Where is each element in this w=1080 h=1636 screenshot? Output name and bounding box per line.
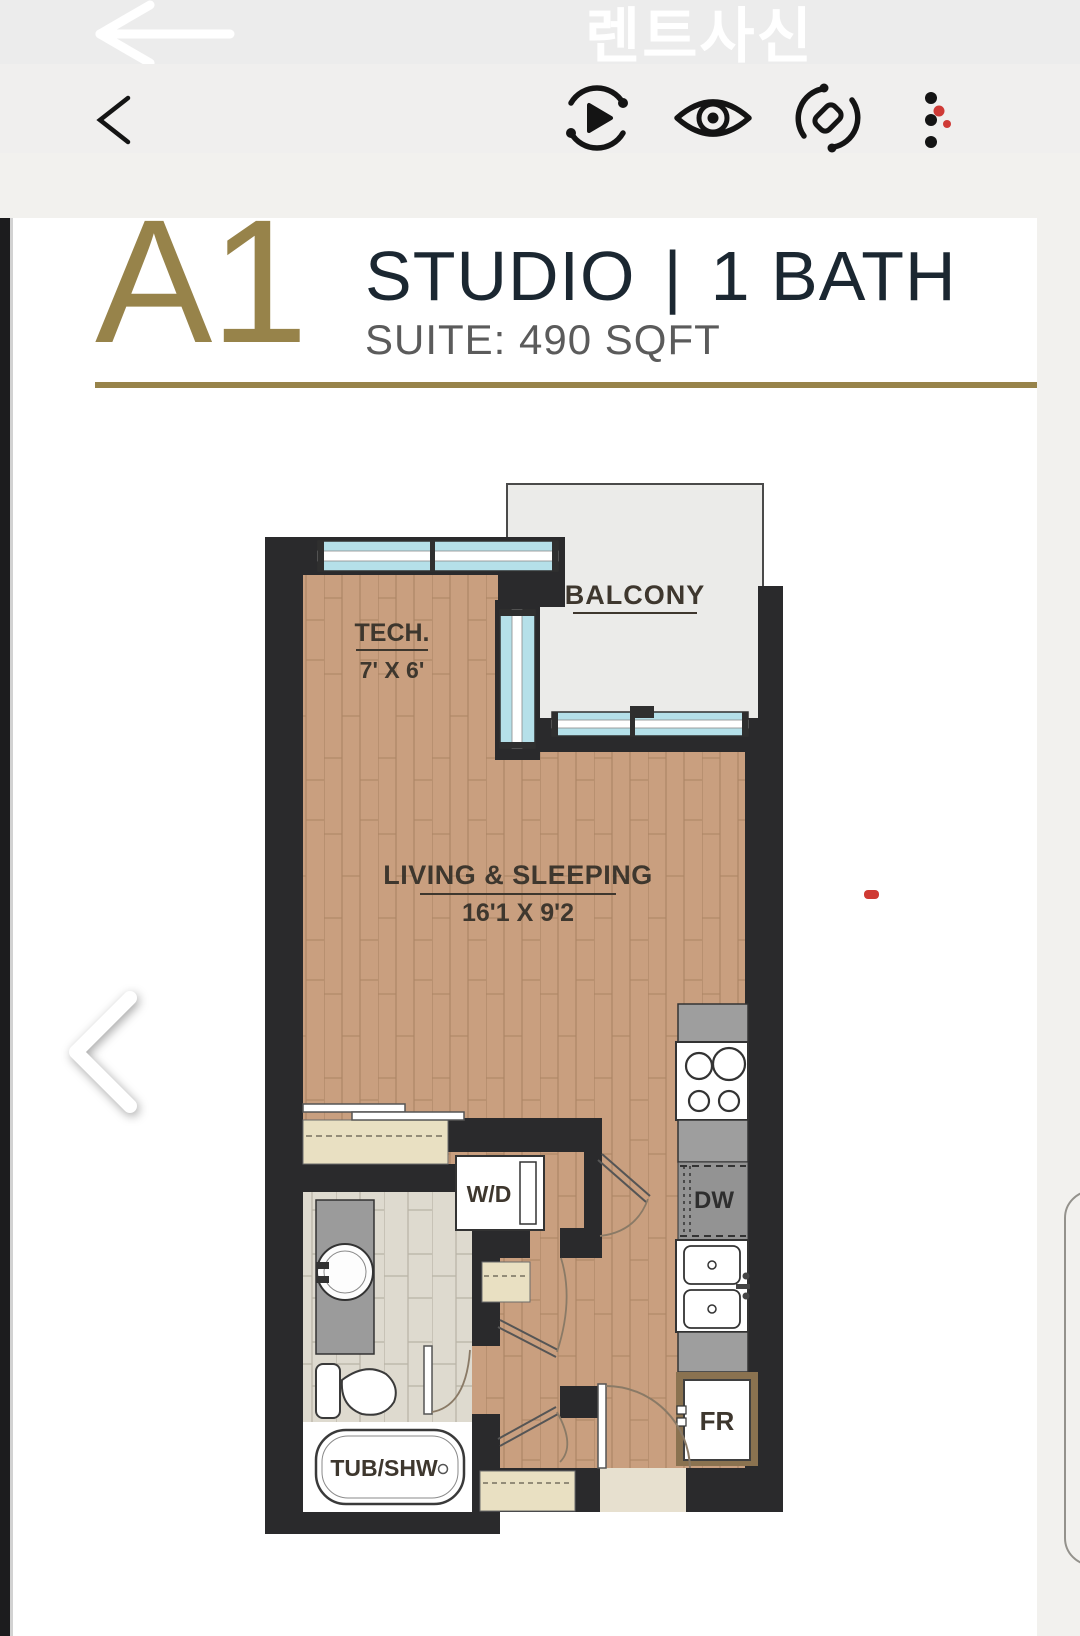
unit-type: STUDIO [365, 237, 635, 315]
carousel-next-image-edge[interactable] [1064, 1190, 1080, 1566]
notification-dot-small [943, 120, 951, 128]
separator: | [663, 237, 682, 315]
floor-plan-image[interactable]: A1 STUDIO|1 BATH SUITE: 490 SQFT [13, 218, 1037, 1636]
suite-size: SUITE: 490 SQFT [365, 316, 721, 364]
app-screen: A1 STUDIO|1 BATH SUITE: 490 SQFT 렌트사신 [0, 0, 1080, 1636]
app-title: 렌트사신 [585, 0, 814, 64]
chevron-left-icon[interactable] [90, 92, 140, 152]
toolbar [0, 64, 1080, 153]
carousel-previous-image-edge[interactable] [0, 218, 13, 1636]
unit-type-line: STUDIO|1 BATH [365, 236, 957, 316]
rotate-object-icon[interactable] [798, 84, 857, 153]
unit-code: A1 [95, 194, 306, 370]
toolbar-actions [540, 64, 960, 153]
preview-eye-icon[interactable] [677, 102, 749, 134]
more-menu-icon[interactable] [925, 92, 951, 148]
notification-dot [934, 106, 945, 117]
slideshow-play-icon[interactable] [566, 88, 628, 148]
gold-divider [95, 382, 1037, 388]
bath-count: 1 BATH [711, 237, 957, 315]
arrow-left-icon[interactable] [70, 0, 330, 64]
status-bar: 렌트사신 [0, 0, 1080, 64]
